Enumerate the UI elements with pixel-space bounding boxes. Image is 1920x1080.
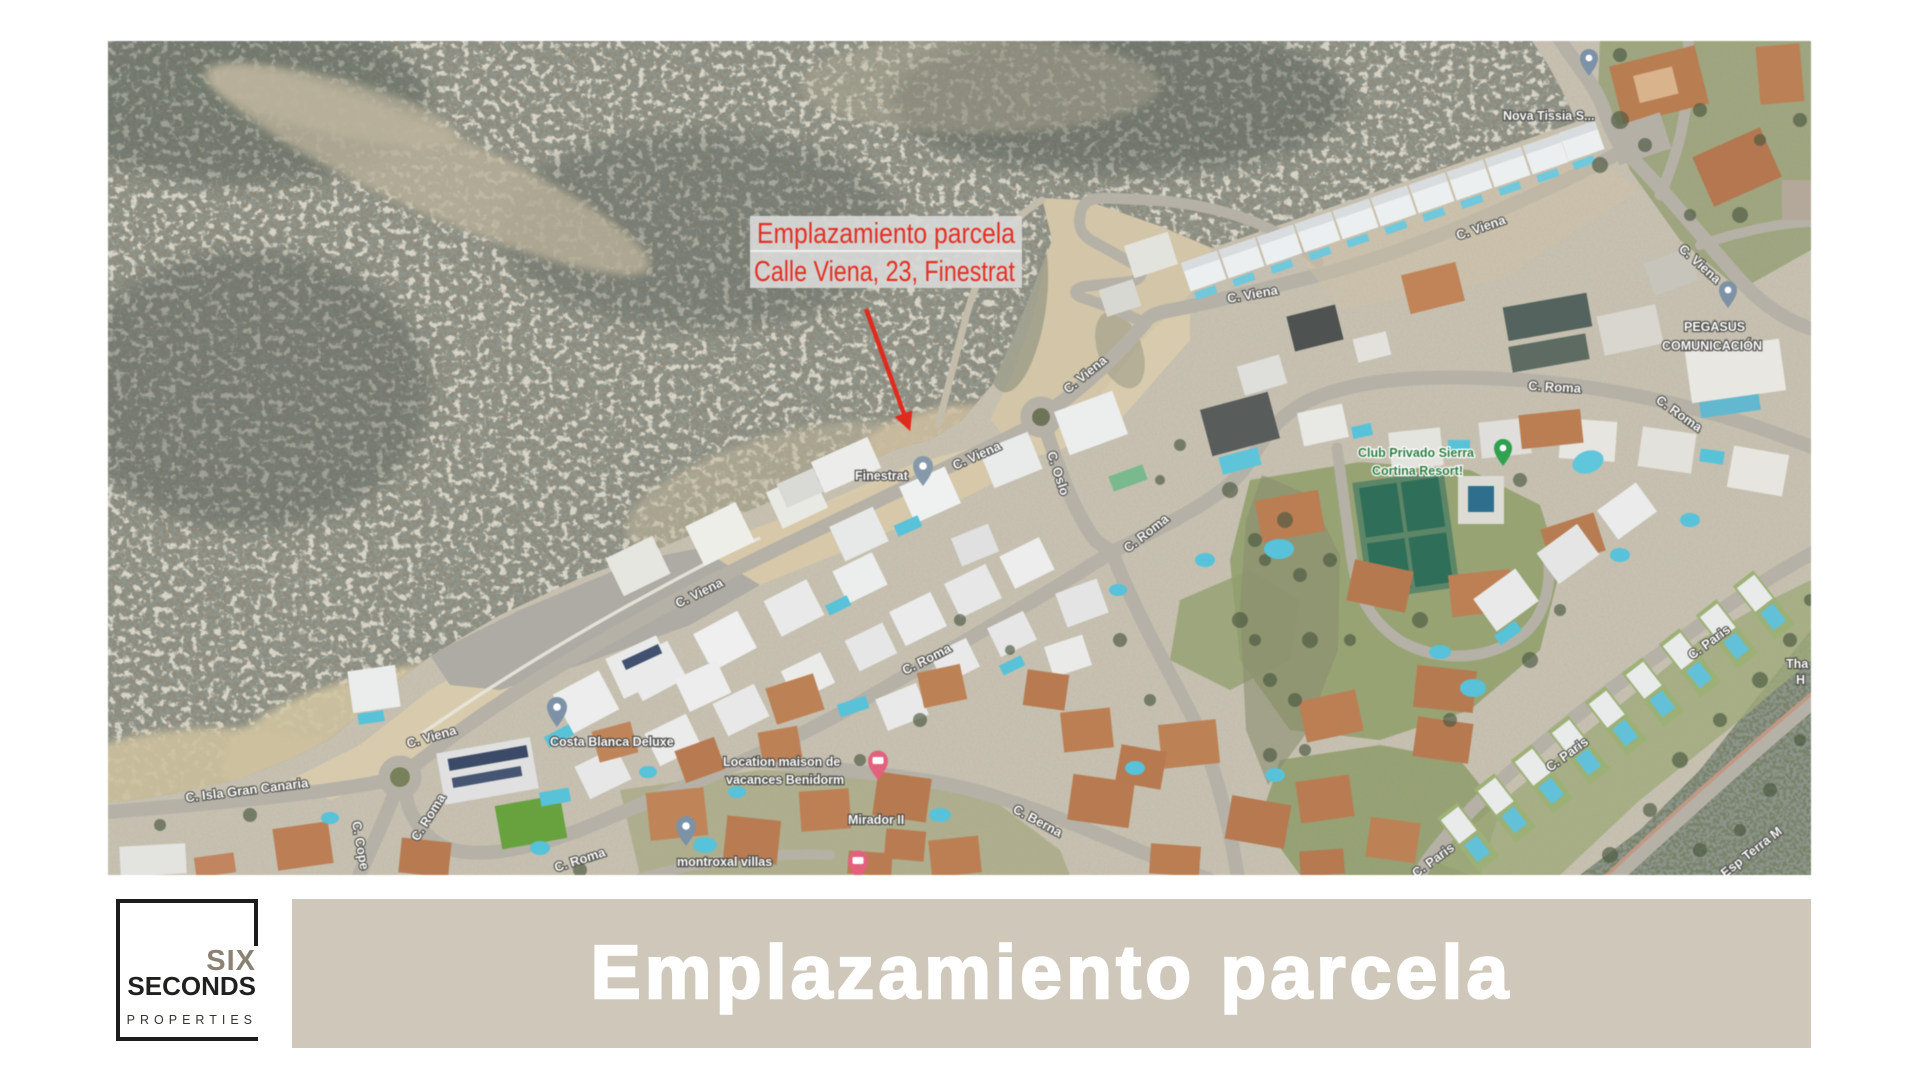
svg-text:Location maison de: Location maison de: [723, 755, 840, 769]
svg-text:Cortina Resort!: Cortina Resort!: [1372, 464, 1463, 478]
svg-text:Club Privado Sierra: Club Privado Sierra: [1358, 446, 1475, 460]
svg-text:Finestrat: Finestrat: [855, 469, 909, 483]
svg-text:Emplazamiento parcela: Emplazamiento parcela: [757, 218, 1016, 250]
svg-text:COMUNICACIÓN: COMUNICACIÓN: [1662, 338, 1762, 353]
svg-text:vacances Benidorm: vacances Benidorm: [726, 773, 844, 787]
svg-text:H: H: [1796, 673, 1805, 687]
svg-text:Calle Viena, 23, Finestrat: Calle Viena, 23, Finestrat: [754, 256, 1015, 288]
svg-text:C. Roma: C. Roma: [1528, 378, 1582, 396]
svg-text:Costa Blanca Deluxe: Costa Blanca Deluxe: [550, 735, 674, 749]
svg-text:Mirador II: Mirador II: [848, 813, 904, 827]
svg-text:Tha: Tha: [1786, 657, 1809, 671]
svg-text:Nova Tissia S...: Nova Tissia S...: [1503, 109, 1594, 123]
svg-text:montroxal villas: montroxal villas: [677, 855, 772, 869]
svg-text:PEGASUS: PEGASUS: [1684, 320, 1745, 334]
